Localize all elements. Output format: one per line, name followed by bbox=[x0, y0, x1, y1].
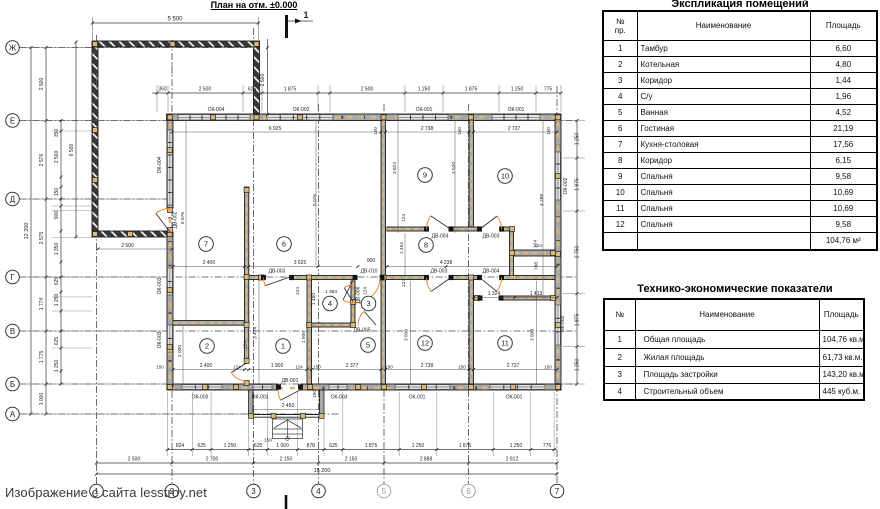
svg-text:ОК-003: ОК-003 bbox=[252, 395, 269, 401]
svg-text:В: В bbox=[10, 327, 15, 336]
svg-text:1 353: 1 353 bbox=[325, 289, 337, 295]
svg-text:625: 625 bbox=[248, 87, 257, 93]
svg-text:1 000: 1 000 bbox=[39, 393, 45, 406]
svg-text:ОК-004: ОК-004 bbox=[157, 156, 163, 173]
svg-text:625: 625 bbox=[198, 443, 207, 449]
svg-text:2 888: 2 888 bbox=[420, 457, 433, 463]
svg-text:2 738: 2 738 bbox=[421, 363, 434, 369]
svg-text:1 000: 1 000 bbox=[276, 443, 289, 449]
svg-text:2 737: 2 737 bbox=[507, 363, 520, 369]
svg-text:3: 3 bbox=[251, 487, 256, 496]
svg-text:10: 10 bbox=[501, 172, 509, 181]
svg-text:6: 6 bbox=[282, 240, 286, 249]
svg-text:9: 9 bbox=[423, 171, 427, 180]
svg-text:150: 150 bbox=[264, 438, 272, 444]
svg-text:ОК-003: ОК-003 bbox=[157, 331, 163, 348]
svg-text:Д: Д bbox=[10, 195, 16, 204]
svg-text:3: 3 bbox=[366, 299, 370, 308]
svg-text:1 875: 1 875 bbox=[459, 443, 472, 449]
svg-text:878: 878 bbox=[307, 443, 316, 449]
svg-text:775: 775 bbox=[543, 443, 552, 449]
svg-text:3 500: 3 500 bbox=[404, 329, 410, 341]
svg-text:1 250: 1 250 bbox=[54, 360, 60, 373]
svg-text:6 500: 6 500 bbox=[69, 144, 75, 157]
svg-text:2 500: 2 500 bbox=[260, 74, 266, 87]
svg-text:350: 350 bbox=[54, 129, 60, 138]
svg-text:ДВ-004: ДВ-004 bbox=[432, 234, 449, 240]
svg-text:1 250: 1 250 bbox=[54, 294, 60, 307]
svg-text:ОК-002: ОК-002 bbox=[563, 177, 569, 194]
svg-text:11: 11 bbox=[501, 339, 509, 348]
svg-text:ОК-001: ОК-001 bbox=[416, 107, 433, 113]
svg-text:124: 124 bbox=[534, 243, 542, 249]
svg-text:ДВ-003: ДВ-003 bbox=[269, 269, 286, 275]
svg-text:Г: Г bbox=[10, 273, 15, 282]
svg-text:6 925: 6 925 bbox=[269, 126, 282, 132]
svg-text:1 324: 1 324 bbox=[488, 291, 501, 297]
svg-text:1 250: 1 250 bbox=[575, 359, 581, 372]
svg-text:12 200: 12 200 bbox=[24, 223, 30, 240]
svg-text:788: 788 bbox=[534, 262, 540, 270]
svg-text:1 250: 1 250 bbox=[575, 133, 581, 146]
svg-text:150: 150 bbox=[457, 127, 462, 135]
svg-text:900: 900 bbox=[54, 211, 60, 220]
svg-text:12: 12 bbox=[421, 339, 429, 348]
svg-text:2 000: 2 000 bbox=[177, 345, 183, 357]
svg-text:124: 124 bbox=[295, 287, 301, 295]
svg-text:ДВ-002: ДВ-002 bbox=[173, 211, 179, 228]
svg-text:ДВ-004: ДВ-004 bbox=[483, 269, 500, 275]
svg-text:1 250: 1 250 bbox=[412, 443, 425, 449]
svg-text:1 250: 1 250 bbox=[418, 87, 431, 93]
svg-text:5 500: 5 500 bbox=[167, 17, 183, 23]
svg-text:ОК-001: ОК-001 bbox=[409, 395, 426, 401]
svg-text:2 150: 2 150 bbox=[280, 457, 293, 463]
svg-text:124: 124 bbox=[295, 365, 303, 370]
svg-text:2 500: 2 500 bbox=[121, 243, 134, 249]
svg-text:1 413: 1 413 bbox=[530, 291, 543, 297]
svg-text:150: 150 bbox=[385, 365, 393, 370]
svg-text:124: 124 bbox=[401, 279, 407, 287]
svg-text:3 500: 3 500 bbox=[530, 329, 536, 341]
svg-text:1 250: 1 250 bbox=[224, 443, 237, 449]
svg-text:15 200: 15 200 bbox=[314, 468, 331, 474]
svg-text:150: 150 bbox=[458, 365, 466, 370]
svg-text:ДВ-003: ДВ-003 bbox=[483, 234, 500, 240]
svg-text:1 900: 1 900 bbox=[301, 331, 307, 343]
svg-text:8: 8 bbox=[424, 241, 428, 250]
svg-text:2 500: 2 500 bbox=[54, 151, 60, 164]
svg-text:625: 625 bbox=[54, 277, 60, 286]
svg-text:1 900: 1 900 bbox=[271, 363, 284, 369]
svg-text:ОК-004: ОК-004 bbox=[208, 107, 225, 113]
svg-text:1 875: 1 875 bbox=[365, 443, 378, 449]
svg-text:824: 824 bbox=[176, 443, 185, 449]
svg-text:2 400: 2 400 bbox=[200, 363, 213, 369]
svg-text:3 520: 3 520 bbox=[451, 162, 457, 174]
svg-text:2 400: 2 400 bbox=[203, 260, 216, 266]
svg-text:6 576: 6 576 bbox=[180, 212, 186, 224]
svg-text:ДВ-010: ДВ-010 bbox=[361, 269, 378, 275]
svg-text:5 076: 5 076 bbox=[312, 194, 318, 206]
svg-text:625: 625 bbox=[329, 443, 338, 449]
svg-text:3 624: 3 624 bbox=[392, 162, 398, 174]
svg-text:1 875: 1 875 bbox=[575, 178, 581, 191]
svg-text:2 812: 2 812 bbox=[506, 457, 519, 463]
svg-text:4 238: 4 238 bbox=[440, 260, 453, 266]
svg-text:2 450: 2 450 bbox=[282, 403, 295, 409]
svg-text:ОК-003: ОК-003 bbox=[157, 277, 163, 294]
svg-text:1 350: 1 350 bbox=[54, 243, 60, 256]
svg-text:2 575: 2 575 bbox=[39, 232, 45, 245]
svg-text:Ж: Ж bbox=[9, 43, 17, 52]
svg-text:4: 4 bbox=[316, 487, 321, 496]
svg-text:2 500: 2 500 bbox=[39, 78, 45, 91]
svg-text:1: 1 bbox=[281, 342, 285, 351]
svg-text:150: 150 bbox=[546, 127, 551, 135]
svg-text:2: 2 bbox=[205, 342, 209, 351]
svg-text:2 750: 2 750 bbox=[575, 246, 581, 259]
svg-text:2 150: 2 150 bbox=[345, 457, 358, 463]
svg-text:3 625: 3 625 bbox=[294, 260, 307, 266]
svg-text:5: 5 bbox=[366, 341, 370, 350]
svg-text:1: 1 bbox=[303, 10, 308, 20]
svg-text:625: 625 bbox=[254, 443, 263, 449]
svg-text:2 700: 2 700 bbox=[206, 457, 219, 463]
svg-text:150: 150 bbox=[156, 365, 164, 370]
svg-text:1 875: 1 875 bbox=[575, 314, 581, 327]
svg-text:1 875: 1 875 bbox=[465, 87, 478, 93]
svg-text:150: 150 bbox=[54, 188, 60, 197]
svg-text:2 500: 2 500 bbox=[361, 87, 374, 93]
svg-text:1 250: 1 250 bbox=[511, 87, 524, 93]
svg-text:124: 124 bbox=[243, 341, 249, 349]
svg-text:775: 775 bbox=[544, 87, 553, 93]
svg-text:6: 6 bbox=[466, 487, 471, 496]
svg-text:ДВ-005: ДВ-005 bbox=[354, 328, 371, 334]
svg-text:2 500: 2 500 bbox=[199, 87, 212, 93]
svg-text:124: 124 bbox=[363, 287, 369, 295]
svg-text:4: 4 bbox=[328, 299, 332, 308]
svg-text:ДВ-001: ДВ-001 bbox=[282, 378, 299, 384]
svg-text:4 288: 4 288 bbox=[539, 194, 545, 206]
svg-text:124: 124 bbox=[401, 214, 407, 222]
svg-text:1 450: 1 450 bbox=[311, 293, 317, 305]
svg-text:150: 150 bbox=[313, 365, 321, 370]
svg-text:1 774: 1 774 bbox=[39, 298, 45, 311]
svg-text:150: 150 bbox=[373, 127, 378, 135]
svg-text:2 737: 2 737 bbox=[508, 126, 521, 132]
svg-text:5: 5 bbox=[382, 487, 387, 496]
svg-text:Е: Е bbox=[10, 116, 15, 125]
svg-text:7: 7 bbox=[555, 487, 560, 496]
svg-text:2 576: 2 576 bbox=[39, 154, 45, 167]
svg-text:ОК-003: ОК-003 bbox=[331, 395, 348, 401]
svg-text:350: 350 bbox=[158, 87, 167, 93]
svg-text:ОК-001: ОК-001 bbox=[508, 107, 525, 113]
svg-text:ДВ-006: ДВ-006 bbox=[356, 286, 362, 303]
svg-text:150: 150 bbox=[312, 390, 318, 398]
svg-text:900: 900 bbox=[367, 258, 376, 264]
svg-text:1 775: 1 775 bbox=[39, 351, 45, 364]
svg-text:А: А bbox=[10, 410, 16, 419]
svg-text:1 875: 1 875 bbox=[284, 87, 297, 93]
svg-text:ОК-001: ОК-001 bbox=[506, 395, 523, 401]
svg-text:1 452: 1 452 bbox=[399, 242, 405, 254]
svg-text:ДВ-003: ДВ-003 bbox=[431, 269, 448, 275]
svg-text:3 474: 3 474 bbox=[253, 327, 259, 339]
svg-text:625: 625 bbox=[54, 337, 60, 346]
svg-text:ОК-003: ОК-003 bbox=[192, 395, 209, 401]
svg-text:2 377: 2 377 bbox=[346, 363, 359, 369]
svg-text:Б: Б bbox=[10, 380, 15, 389]
svg-text:2 500: 2 500 bbox=[128, 457, 141, 463]
svg-text:150: 150 bbox=[544, 365, 552, 370]
svg-text:ОК-002: ОК-002 bbox=[293, 107, 310, 113]
svg-text:ОК-002: ОК-002 bbox=[560, 315, 566, 332]
svg-text:7: 7 bbox=[204, 240, 208, 249]
svg-text:2 738: 2 738 bbox=[421, 126, 434, 132]
svg-text:1 250: 1 250 bbox=[510, 443, 523, 449]
svg-text:124: 124 bbox=[233, 365, 241, 370]
